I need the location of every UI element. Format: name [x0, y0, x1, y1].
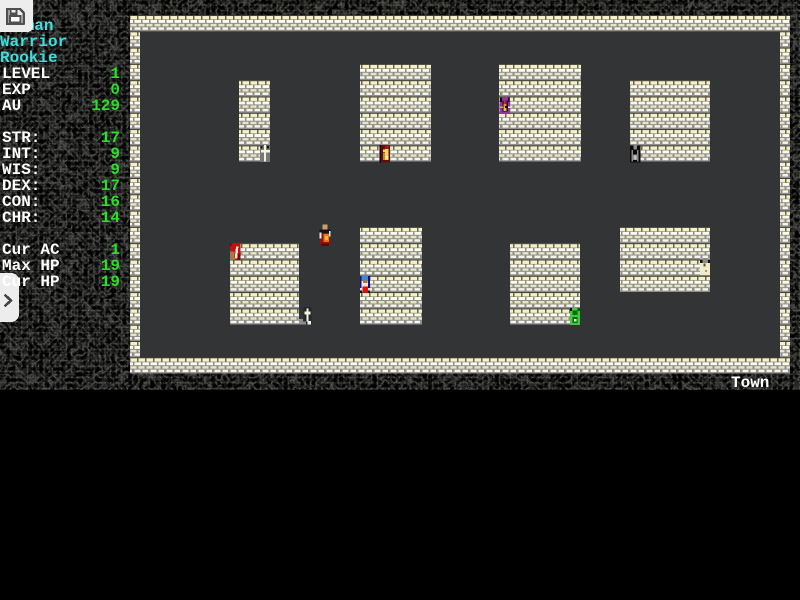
svg-text:Cur HP: Cur HP — [2, 273, 60, 291]
svg-text:129: 129 — [91, 97, 120, 115]
svg-text:Town: Town — [731, 374, 769, 392]
svg-text:CHR:: CHR: — [2, 209, 40, 227]
svg-text:AU: AU — [2, 97, 21, 115]
svg-text:19: 19 — [101, 273, 120, 291]
svg-text:14: 14 — [101, 209, 121, 227]
